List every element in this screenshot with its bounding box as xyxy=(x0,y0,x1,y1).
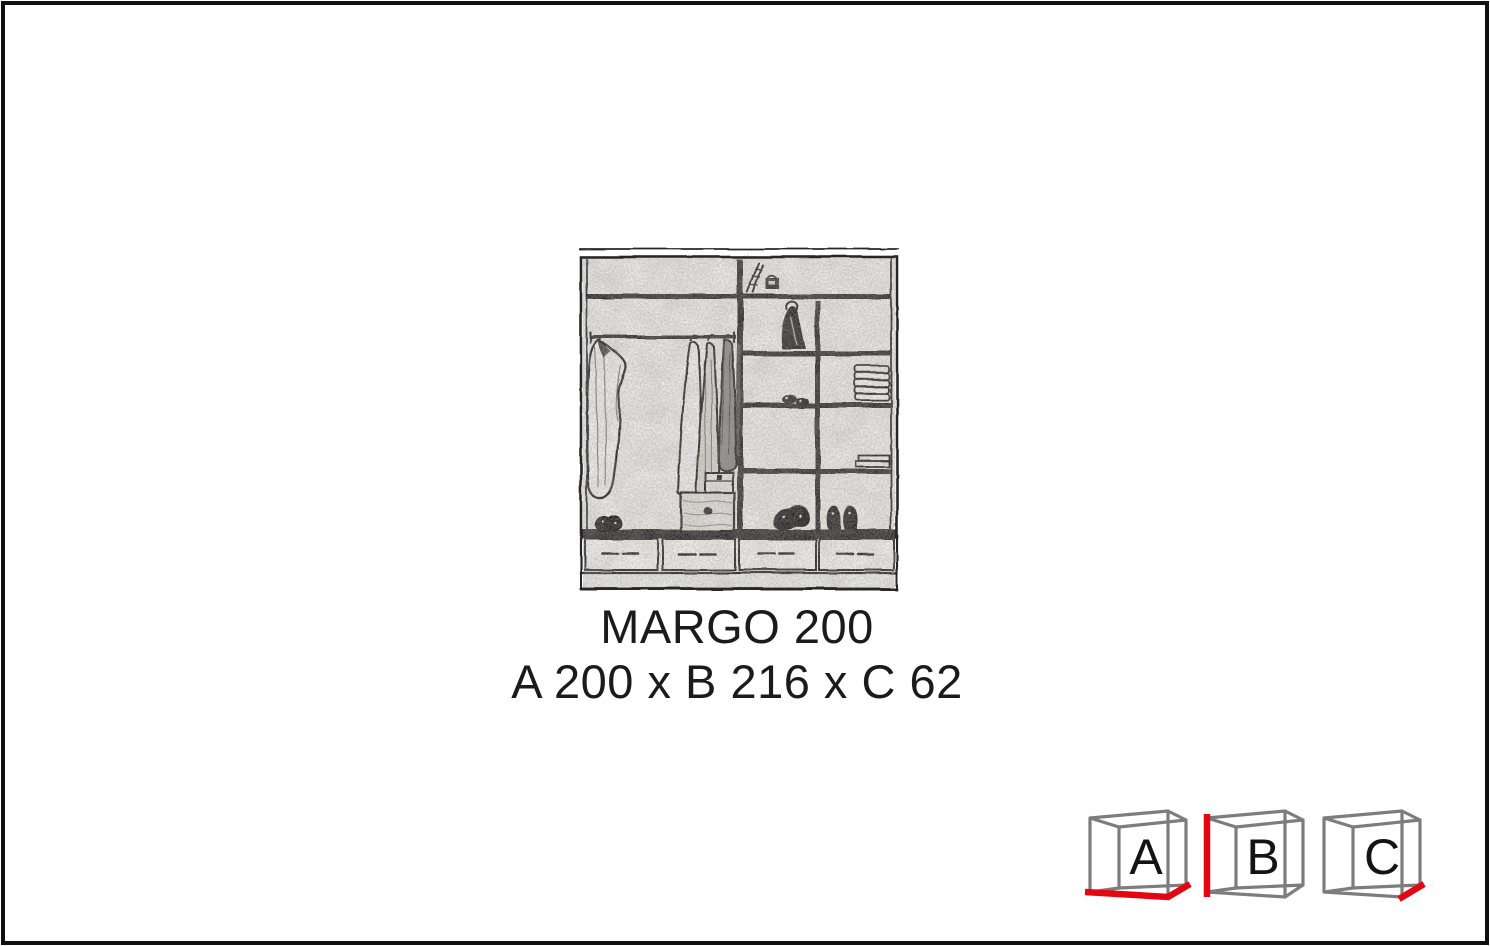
cube-c-label: C xyxy=(1364,829,1400,885)
cube-b-label: B xyxy=(1246,829,1279,885)
product-caption: MARGO 200 A 200 x B 216 x C 62 xyxy=(387,599,1087,709)
dimension-cube-b-icon: B xyxy=(1199,808,1311,908)
wardrobe-interior-sketch xyxy=(578,245,900,595)
pencil-shading-texture xyxy=(583,258,895,588)
dimension-cube-c-icon: C xyxy=(1316,808,1428,908)
product-dimensions: A 200 x B 216 x C 62 xyxy=(387,654,1087,709)
dimension-legend: A B C xyxy=(1082,808,1428,908)
cube-a-label: A xyxy=(1129,829,1163,885)
dimension-cube-a-icon: A xyxy=(1082,808,1194,908)
product-name: MARGO 200 xyxy=(387,599,1087,654)
wardrobe-figure xyxy=(578,245,900,595)
